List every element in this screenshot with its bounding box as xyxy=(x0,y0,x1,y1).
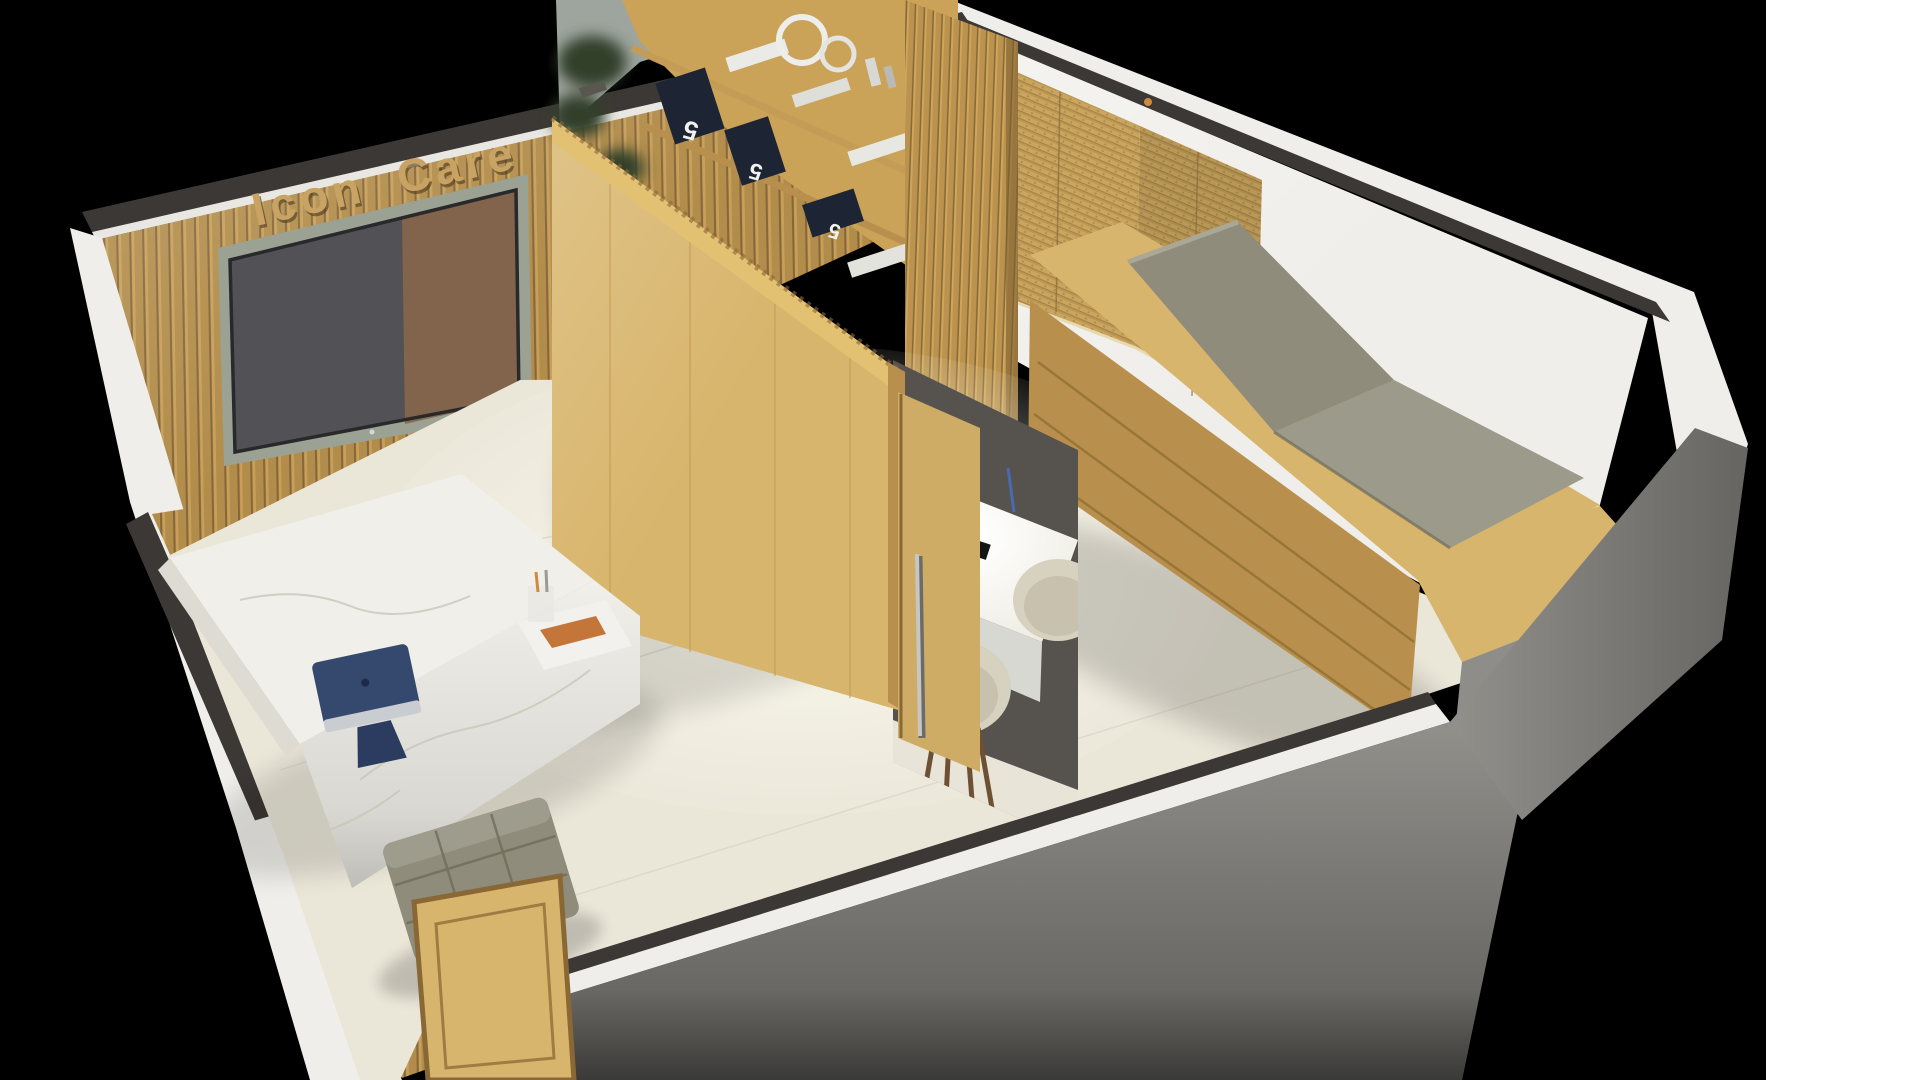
white-page-margin xyxy=(1766,0,1920,1080)
sliding-door xyxy=(898,392,980,772)
plant-foliage xyxy=(558,36,626,88)
tv-screen-reflection xyxy=(402,190,519,424)
acrylic-pen-cup xyxy=(528,586,554,622)
tv-standby-light xyxy=(370,430,375,435)
pen xyxy=(546,570,547,592)
entry-door-panel xyxy=(414,876,574,1080)
pen xyxy=(536,572,538,592)
clinic-3d-render: Icon Care Icon Care 5 5 xyxy=(0,0,1920,1080)
blind-tassel xyxy=(1144,98,1152,106)
screenshot-canvas: Icon Care Icon Care 5 5 xyxy=(0,0,1920,1080)
door-leaf-tone xyxy=(898,392,980,772)
